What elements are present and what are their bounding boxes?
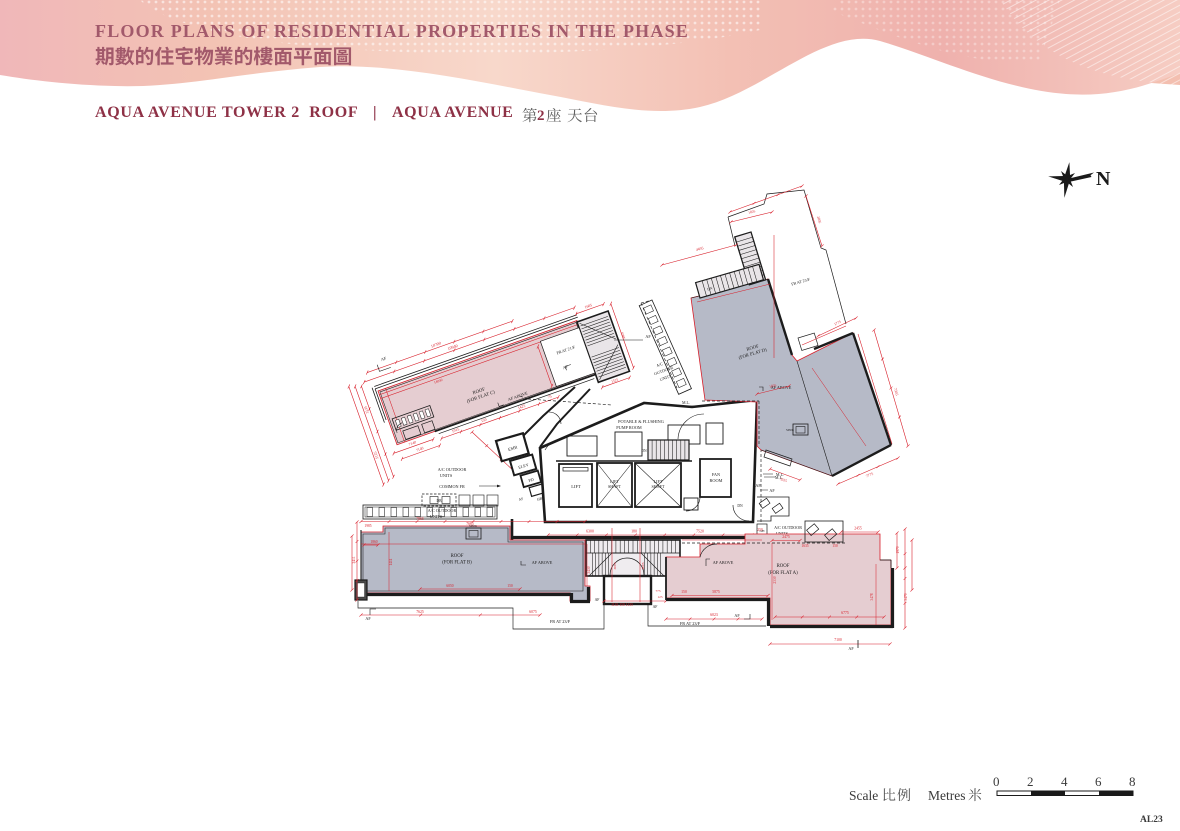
svg-text:ROOF: ROOF [451, 554, 464, 559]
svg-text:AF: AF [365, 616, 371, 621]
svg-text:AF: AF [653, 605, 658, 609]
svg-text:PUMP ROOM: PUMP ROOM [616, 425, 642, 430]
svg-text:10940: 10940 [447, 343, 459, 351]
svg-text:AF: AF [734, 613, 740, 618]
svg-text:A/C OUTDOOR: A/C OUTDOOR [428, 508, 457, 513]
svg-text:ROOM: ROOM [710, 478, 723, 483]
svg-text:2330: 2330 [773, 576, 777, 583]
svg-text:AL23: AL23 [1140, 815, 1163, 825]
svg-text:A/C OUTDOOR: A/C OUTDOOR [438, 467, 467, 472]
svg-text:SHAFT: SHAFT [608, 484, 621, 489]
svg-text:150: 150 [507, 584, 513, 588]
svg-text:ROOF: ROOF [777, 564, 790, 569]
svg-text:10700: 10700 [430, 340, 442, 348]
svg-text:6300: 6300 [586, 530, 594, 534]
svg-text:75: 75 [547, 394, 552, 399]
svg-text:Scale: Scale [849, 788, 878, 803]
svg-text:2: 2 [1027, 774, 1034, 789]
svg-text:AF: AF [645, 334, 651, 339]
svg-text:DN: DN [737, 504, 743, 508]
svg-text:SINK: SINK [786, 428, 794, 432]
svg-text:3411: 3411 [352, 556, 356, 564]
svg-text:7100: 7100 [834, 638, 842, 642]
svg-text:SHAFT: SHAFT [652, 484, 665, 489]
svg-text:1985: 1985 [364, 524, 371, 528]
svg-text:150: 150 [681, 590, 687, 594]
svg-text:(FOR FLAT A): (FOR FLAT A) [768, 571, 798, 576]
svg-text:AF: AF [755, 483, 761, 488]
svg-text:1860: 1860 [370, 540, 377, 544]
svg-text:A/C OUTDOOR: A/C OUTDOOR [774, 525, 802, 530]
svg-text:UNITS: UNITS [440, 473, 453, 478]
svg-text:180: 180 [631, 530, 637, 534]
svg-text:FR AT 23/F: FR AT 23/F [791, 276, 812, 286]
svg-text:AF: AF [848, 646, 854, 651]
svg-text:6: 6 [1095, 774, 1102, 789]
svg-text:2605: 2605 [620, 331, 626, 339]
svg-text:6050: 6050 [446, 584, 453, 588]
svg-text:7625: 7625 [416, 610, 424, 614]
svg-text:AF: AF [380, 355, 387, 362]
svg-text:7520: 7520 [696, 530, 704, 534]
svg-text:DN: DN [641, 449, 647, 453]
svg-text:3478: 3478 [870, 593, 874, 600]
svg-text:2455: 2455 [854, 527, 862, 531]
svg-text:1970: 1970 [896, 546, 900, 553]
svg-text:AF: AF [518, 497, 524, 502]
svg-text:AF ABOVE: AF ABOVE [713, 560, 734, 565]
svg-text:1635: 1635 [801, 544, 808, 548]
svg-text:3005: 3005 [641, 562, 645, 569]
svg-text:4: 4 [1061, 774, 1068, 789]
svg-text:POTABLE & FLUSHING: POTABLE & FLUSHING [618, 419, 664, 424]
svg-text:7865: 7865 [416, 517, 424, 521]
svg-text:FR AT 23/F: FR AT 23/F [680, 621, 701, 626]
svg-text:Metres: Metres [928, 788, 966, 803]
svg-text:1605: 1605 [748, 209, 756, 215]
svg-text:AF: AF [769, 488, 775, 493]
svg-text:125: 125 [657, 595, 662, 599]
svg-text:UNITS: UNITS [659, 373, 673, 382]
svg-text:0: 0 [993, 774, 1000, 789]
svg-text:FR AT 23/F: FR AT 23/F [550, 619, 571, 624]
svg-text:COMMON FR: COMMON FR [439, 484, 465, 489]
svg-text:2475: 2475 [782, 535, 790, 539]
svg-text:150: 150 [481, 417, 488, 423]
svg-text:M.L.: M.L. [682, 400, 690, 405]
svg-text:2605: 2605 [816, 216, 822, 224]
svg-text:DB: DB [437, 499, 443, 503]
svg-text:6023: 6023 [710, 613, 718, 617]
svg-text:3470: 3470 [904, 593, 908, 600]
svg-text:150: 150 [832, 544, 838, 548]
svg-text:A/C: A/C [655, 361, 663, 368]
svg-text:7365: 7365 [893, 387, 899, 396]
svg-text:4495: 4495 [696, 246, 704, 252]
svg-text:UNITS: UNITS [430, 514, 443, 519]
svg-text:1411: 1411 [389, 558, 393, 565]
svg-text:LIFT: LIFT [571, 484, 581, 489]
svg-text:7665: 7665 [466, 522, 474, 526]
svg-text:(FOR FLAT B): (FOR FLAT B) [442, 561, 472, 566]
svg-text:8: 8 [1129, 774, 1136, 789]
svg-text:2: 2 [537, 108, 545, 124]
svg-text:3225: 3225 [779, 477, 787, 483]
svg-text:5875: 5875 [712, 590, 720, 594]
svg-text:3005: 3005 [613, 562, 617, 569]
svg-text:7775: 7775 [865, 472, 874, 479]
svg-text:N: N [1096, 168, 1111, 190]
svg-text:AF ABOVE: AF ABOVE [532, 560, 553, 565]
svg-text:775: 775 [655, 589, 660, 593]
svg-text:3430: 3430 [587, 566, 591, 573]
svg-text:FAN: FAN [712, 472, 720, 477]
svg-text:6775: 6775 [841, 611, 849, 615]
svg-text:GH: GH [759, 529, 765, 533]
svg-text:AF: AF [595, 598, 600, 602]
svg-text:1135 150 1135: 1135 150 1135 [611, 603, 633, 607]
svg-text:6075: 6075 [529, 610, 537, 614]
